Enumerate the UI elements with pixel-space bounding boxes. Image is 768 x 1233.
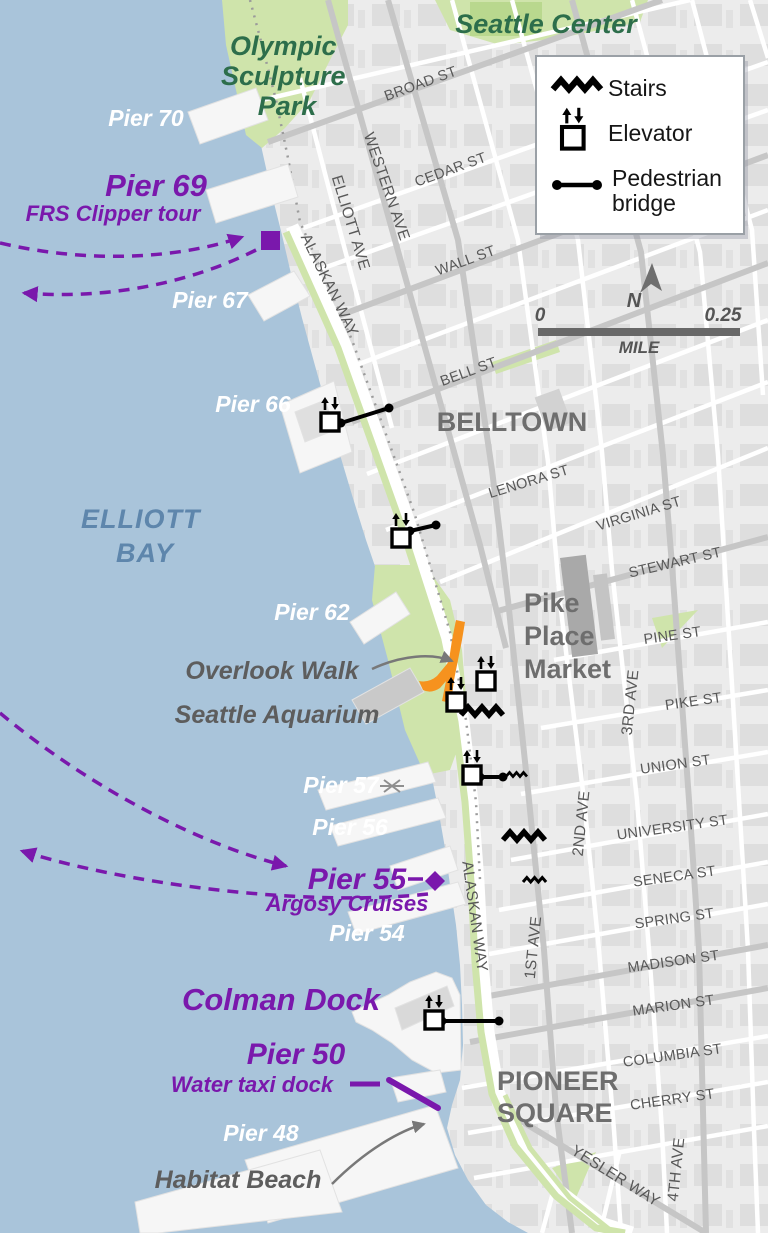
label-ppm-line1: Pike	[524, 588, 580, 618]
label-pier-50-sub: Water taxi dock	[171, 1072, 335, 1097]
label-ppm-line3: Market	[524, 654, 611, 684]
label-bay-line2: BAY	[116, 538, 176, 568]
label-pier-54: Pier 54	[329, 920, 405, 946]
legend-stairs-label: Stairs	[608, 75, 667, 101]
label-habitat-beach: Habitat Beach	[155, 1166, 322, 1194]
label-osp-line2: Sculpture	[221, 61, 346, 91]
label-pier-50: Pier 50	[247, 1038, 346, 1071]
label-pier-66: Pier 66	[215, 391, 291, 417]
legend-pb-line2: bridge	[612, 190, 676, 216]
label-pier-69-sub: FRS Clipper tour	[26, 201, 202, 226]
label-pier-55-sub: Argosy Cruises	[265, 891, 429, 916]
label-belltown: BELLTOWN	[437, 407, 587, 437]
label-osp-line3: Park	[258, 91, 319, 121]
waterfront-map: BROAD ST CEDAR ST WALL ST BELL ST LENORA…	[0, 0, 768, 1233]
scale-start: 0	[535, 305, 546, 326]
label-ps-line2: SQUARE	[497, 1098, 613, 1128]
legend-pb-line1: Pedestrian	[612, 165, 722, 191]
scale-bar-rule	[538, 328, 740, 336]
scale-end: 0.25	[705, 305, 742, 326]
label-pier-56: Pier 56	[312, 814, 388, 840]
pier-69-dock-marker	[261, 231, 280, 250]
legend: Stairs Elevator Pedestrian bridge	[536, 56, 748, 239]
label-pier-70: Pier 70	[108, 105, 184, 131]
label-ppm-line2: Place	[524, 621, 595, 651]
label-pier-62: Pier 62	[274, 599, 350, 625]
label-overlook-walk: Overlook Walk	[185, 657, 359, 685]
label-seattle-center: Seattle Center	[455, 9, 638, 39]
legend-elevator-label: Elevator	[608, 120, 693, 146]
label-colman-dock: Colman Dock	[182, 982, 382, 1017]
map-canvas: BROAD ST CEDAR ST WALL ST BELL ST LENORA…	[0, 0, 768, 1233]
label-pier-57: Pier 57	[303, 772, 380, 798]
scale-unit: MILE	[619, 338, 660, 357]
label-pier-48: Pier 48	[223, 1120, 299, 1146]
label-pier-69: Pier 69	[105, 168, 207, 203]
north-label: N	[627, 290, 642, 312]
label-seattle-aquarium: Seattle Aquarium	[175, 701, 380, 729]
label-osp-line1: Olympic	[230, 31, 337, 61]
label-bay-line1: ELLIOTT	[81, 504, 202, 534]
label-pier-67: Pier 67	[172, 287, 249, 313]
label-ps-line1: PIONEER	[497, 1066, 619, 1096]
